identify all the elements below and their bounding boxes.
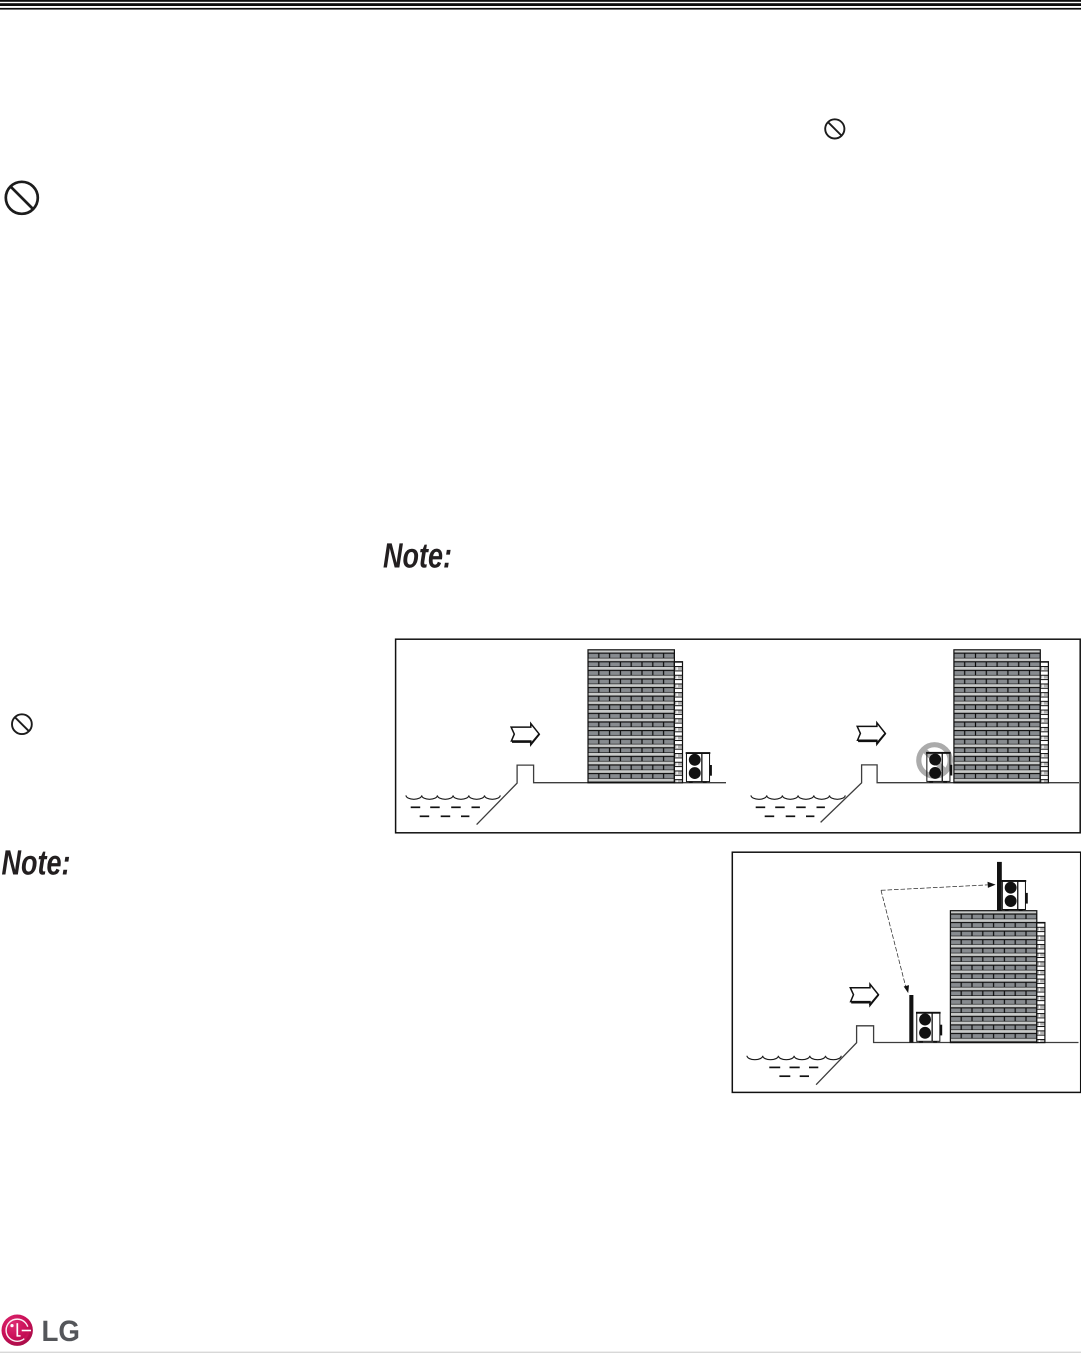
svg-text:Note:: Note: [383,537,452,576]
svg-text:Note:: Note: [2,844,71,883]
svg-text:LG: LG [42,1315,81,1348]
